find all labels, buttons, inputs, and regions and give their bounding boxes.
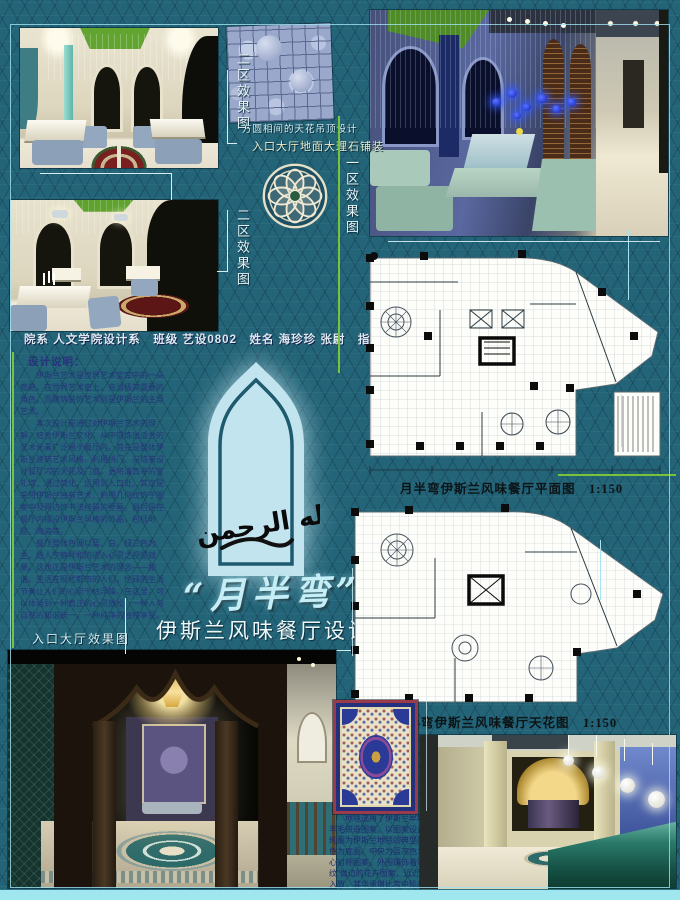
- green-accent-line: [338, 116, 340, 373]
- pendant-lamp: [522, 103, 531, 111]
- rosette-medallion: [261, 162, 329, 230]
- ceiling-dark: [8, 650, 336, 664]
- dining-table: [126, 266, 159, 279]
- corridor-door: [623, 60, 644, 128]
- interior-figures: [528, 800, 579, 828]
- left-dark-edge: [420, 735, 438, 890]
- leader-line: [217, 271, 227, 272]
- corridor-ceiling: [596, 10, 668, 37]
- persian-carpet-image: [333, 700, 418, 814]
- sofa: [131, 279, 158, 296]
- design-notes-paragraph: 本次设计是通过对伊斯兰艺术的理解，结合伊斯兰文化，从中提炼出适合的艺术元素广泛用…: [20, 418, 170, 538]
- ceiling-plan-caption: 月半弯伊斯兰风味餐厅天花图 1:150: [394, 712, 617, 731]
- render-zone2-view2: [10, 200, 218, 331]
- poster-subtitle: 伊斯兰风味餐厅设计: [150, 615, 378, 651]
- leader-line: [426, 693, 427, 811]
- pendant-light: [52, 210, 68, 218]
- label-zone2-mid: 二区效果图: [233, 208, 252, 288]
- pendant-light: [114, 214, 128, 221]
- label-zone1: 一区效果图: [342, 156, 361, 236]
- render-entrance-hall: [8, 650, 336, 888]
- niche-arch: [297, 712, 327, 764]
- spotlight: [297, 657, 301, 661]
- ball-lamp: [592, 766, 605, 779]
- portal-column: [93, 721, 116, 888]
- ball-lamp: [648, 791, 665, 808]
- sofa: [376, 186, 453, 231]
- curtain: [20, 48, 38, 129]
- round-carpet: [91, 146, 117, 168]
- dome-highlight: [256, 35, 283, 62]
- bar-counter: [464, 134, 535, 168]
- candles: [43, 273, 45, 285]
- sofa: [32, 140, 83, 165]
- arch-window: [33, 220, 74, 292]
- label-zone2-top: 二区效果图: [233, 52, 252, 132]
- aqua-pillar: [64, 45, 74, 129]
- leader-line: [40, 173, 172, 174]
- round-rug: [118, 294, 189, 318]
- construction-line: [600, 540, 601, 600]
- green-accent-line: [558, 474, 676, 476]
- bottom-accent-band: [0, 889, 680, 900]
- ceiling-plan-drawing: [345, 498, 677, 714]
- render-reception: [420, 735, 676, 890]
- dome-highlight: [290, 70, 313, 93]
- sofa: [155, 139, 203, 164]
- leader-line: [227, 210, 228, 272]
- dining-table: [149, 119, 205, 137]
- design-notes-paragraph: 餐厅整体色调以蓝、白、绿三色为主，给人宁静祥和的进入心灵之视觉效果。这也正是伊斯…: [20, 538, 170, 622]
- render-zone1: [370, 10, 668, 236]
- islamic-arch-graphic: بسم الله الرحمن الرحيم: [192, 358, 320, 580]
- leader-line: [227, 143, 237, 144]
- render-zone2-view1: [20, 28, 218, 168]
- bead-curtain: [370, 10, 602, 128]
- note-floor-marble: 入口大厅地面大理石铺装: [252, 138, 384, 154]
- pendant-lamp: [537, 94, 547, 103]
- flower-vase: [516, 128, 523, 135]
- wooden-arch: [54, 650, 297, 888]
- dining-table: [52, 268, 81, 280]
- pendant-lamp: [513, 112, 521, 119]
- dining-table: [24, 120, 86, 141]
- left-wall: [438, 747, 484, 856]
- note-ceiling-design: 方圆相间的天花吊顶设计: [242, 121, 358, 135]
- pendant-lamp: [567, 98, 576, 106]
- portal-column: [215, 721, 238, 888]
- construction-line: [621, 395, 622, 447]
- long-table: [446, 168, 548, 197]
- leader-line: [227, 70, 228, 144]
- sofa: [370, 150, 430, 186]
- label-entrance-hall: 入口大厅效果图: [32, 630, 130, 647]
- design-notes-title: 设计说明：: [28, 356, 170, 368]
- poster-root: 二区效果图 二区效果图 一区效果图 方圆相间的天花吊顶设计 入口大厅地面大理石铺…: [0, 0, 680, 900]
- lamp-stem: [568, 735, 569, 757]
- round-carpet: [121, 146, 147, 168]
- arch-window: [91, 64, 123, 132]
- leader-line: [125, 598, 126, 654]
- design-notes-paragraph: 伊斯兰艺术是世界艺术宝库中的一朵奇葩，在世界艺术史上，充当极其重要的角色，而建筑…: [20, 370, 170, 418]
- leader-line: [352, 568, 353, 656]
- pendant-lamp: [552, 105, 561, 113]
- dark-column: [659, 10, 668, 173]
- design-notes: 设计说明： 伊斯兰艺术是世界艺术宝库中的一朵奇葩，在世界艺术史上，充当极其重要的…: [20, 356, 170, 622]
- sofa: [87, 295, 121, 330]
- floor-plan-drawing: [362, 246, 670, 480]
- leader-line: [171, 173, 172, 200]
- carpet-medallion: [359, 735, 393, 779]
- divider-line: [388, 241, 660, 242]
- ball-lamp: [620, 778, 635, 793]
- sofa: [10, 305, 47, 331]
- poster-title: “月半弯”: [182, 562, 363, 620]
- green-accent-line: [12, 352, 14, 648]
- floor-plan-caption: 月半弯伊斯兰风味餐厅平面图 1:150: [400, 478, 623, 497]
